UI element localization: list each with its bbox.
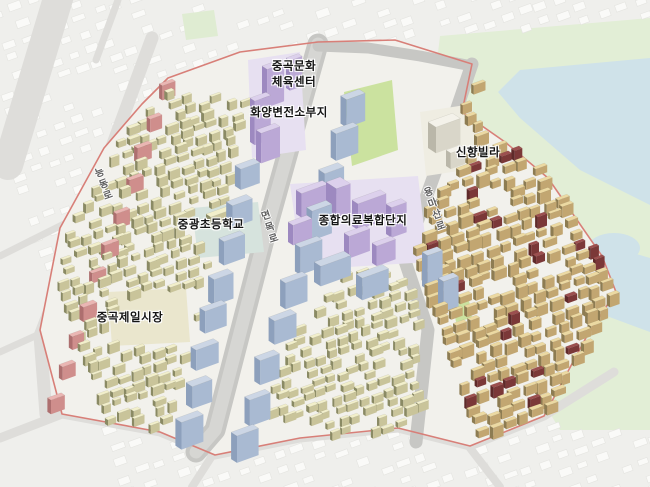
urban-plan-map: 중곡문화 체육센터 화양변전소부지 중광초등학교 종합의료복합단지 중곡제일시장… [0, 0, 650, 487]
map-canvas [0, 0, 650, 487]
